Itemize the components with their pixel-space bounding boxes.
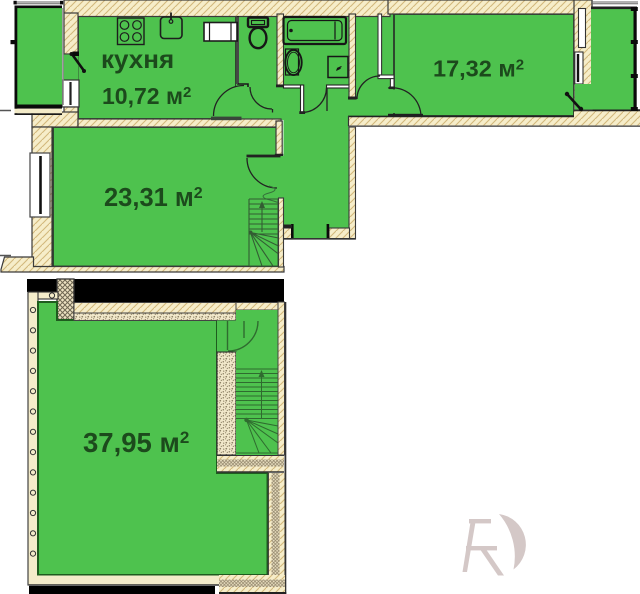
- svg-text:кухня: кухня: [101, 44, 174, 74]
- svg-text:23,31 м2: 23,31 м2: [104, 184, 203, 212]
- svg-text:10,72 м2: 10,72 м2: [102, 83, 191, 109]
- svg-text:17,32 м2: 17,32 м2: [433, 56, 524, 82]
- svg-text:37,95 м2: 37,95 м2: [83, 427, 189, 458]
